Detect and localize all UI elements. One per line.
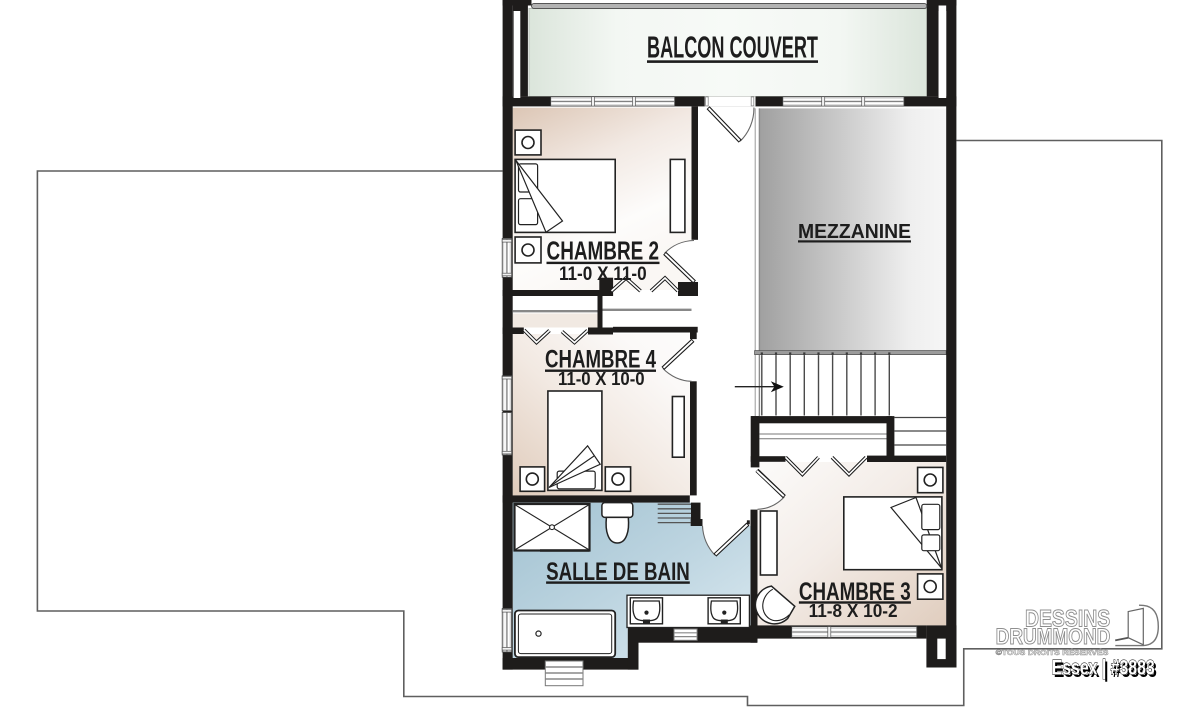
svg-text:11-0 X 10-0: 11-0 X 10-0 <box>558 368 645 389</box>
svg-text:MEZZANINE: MEZZANINE <box>798 221 911 243</box>
svg-text:Essex | #3883: Essex | #3883 <box>1052 656 1155 680</box>
svg-text:DRUMMOND: DRUMMOND <box>996 624 1111 649</box>
svg-text:11-8 X 10-2: 11-8 X 10-2 <box>809 600 898 621</box>
svg-text:11-0 X 11-0: 11-0 X 11-0 <box>559 264 647 285</box>
svg-text:BALCON COUVERT: BALCON COUVERT <box>647 30 818 65</box>
svg-text:CHAMBRE 2: CHAMBRE 2 <box>547 235 660 265</box>
